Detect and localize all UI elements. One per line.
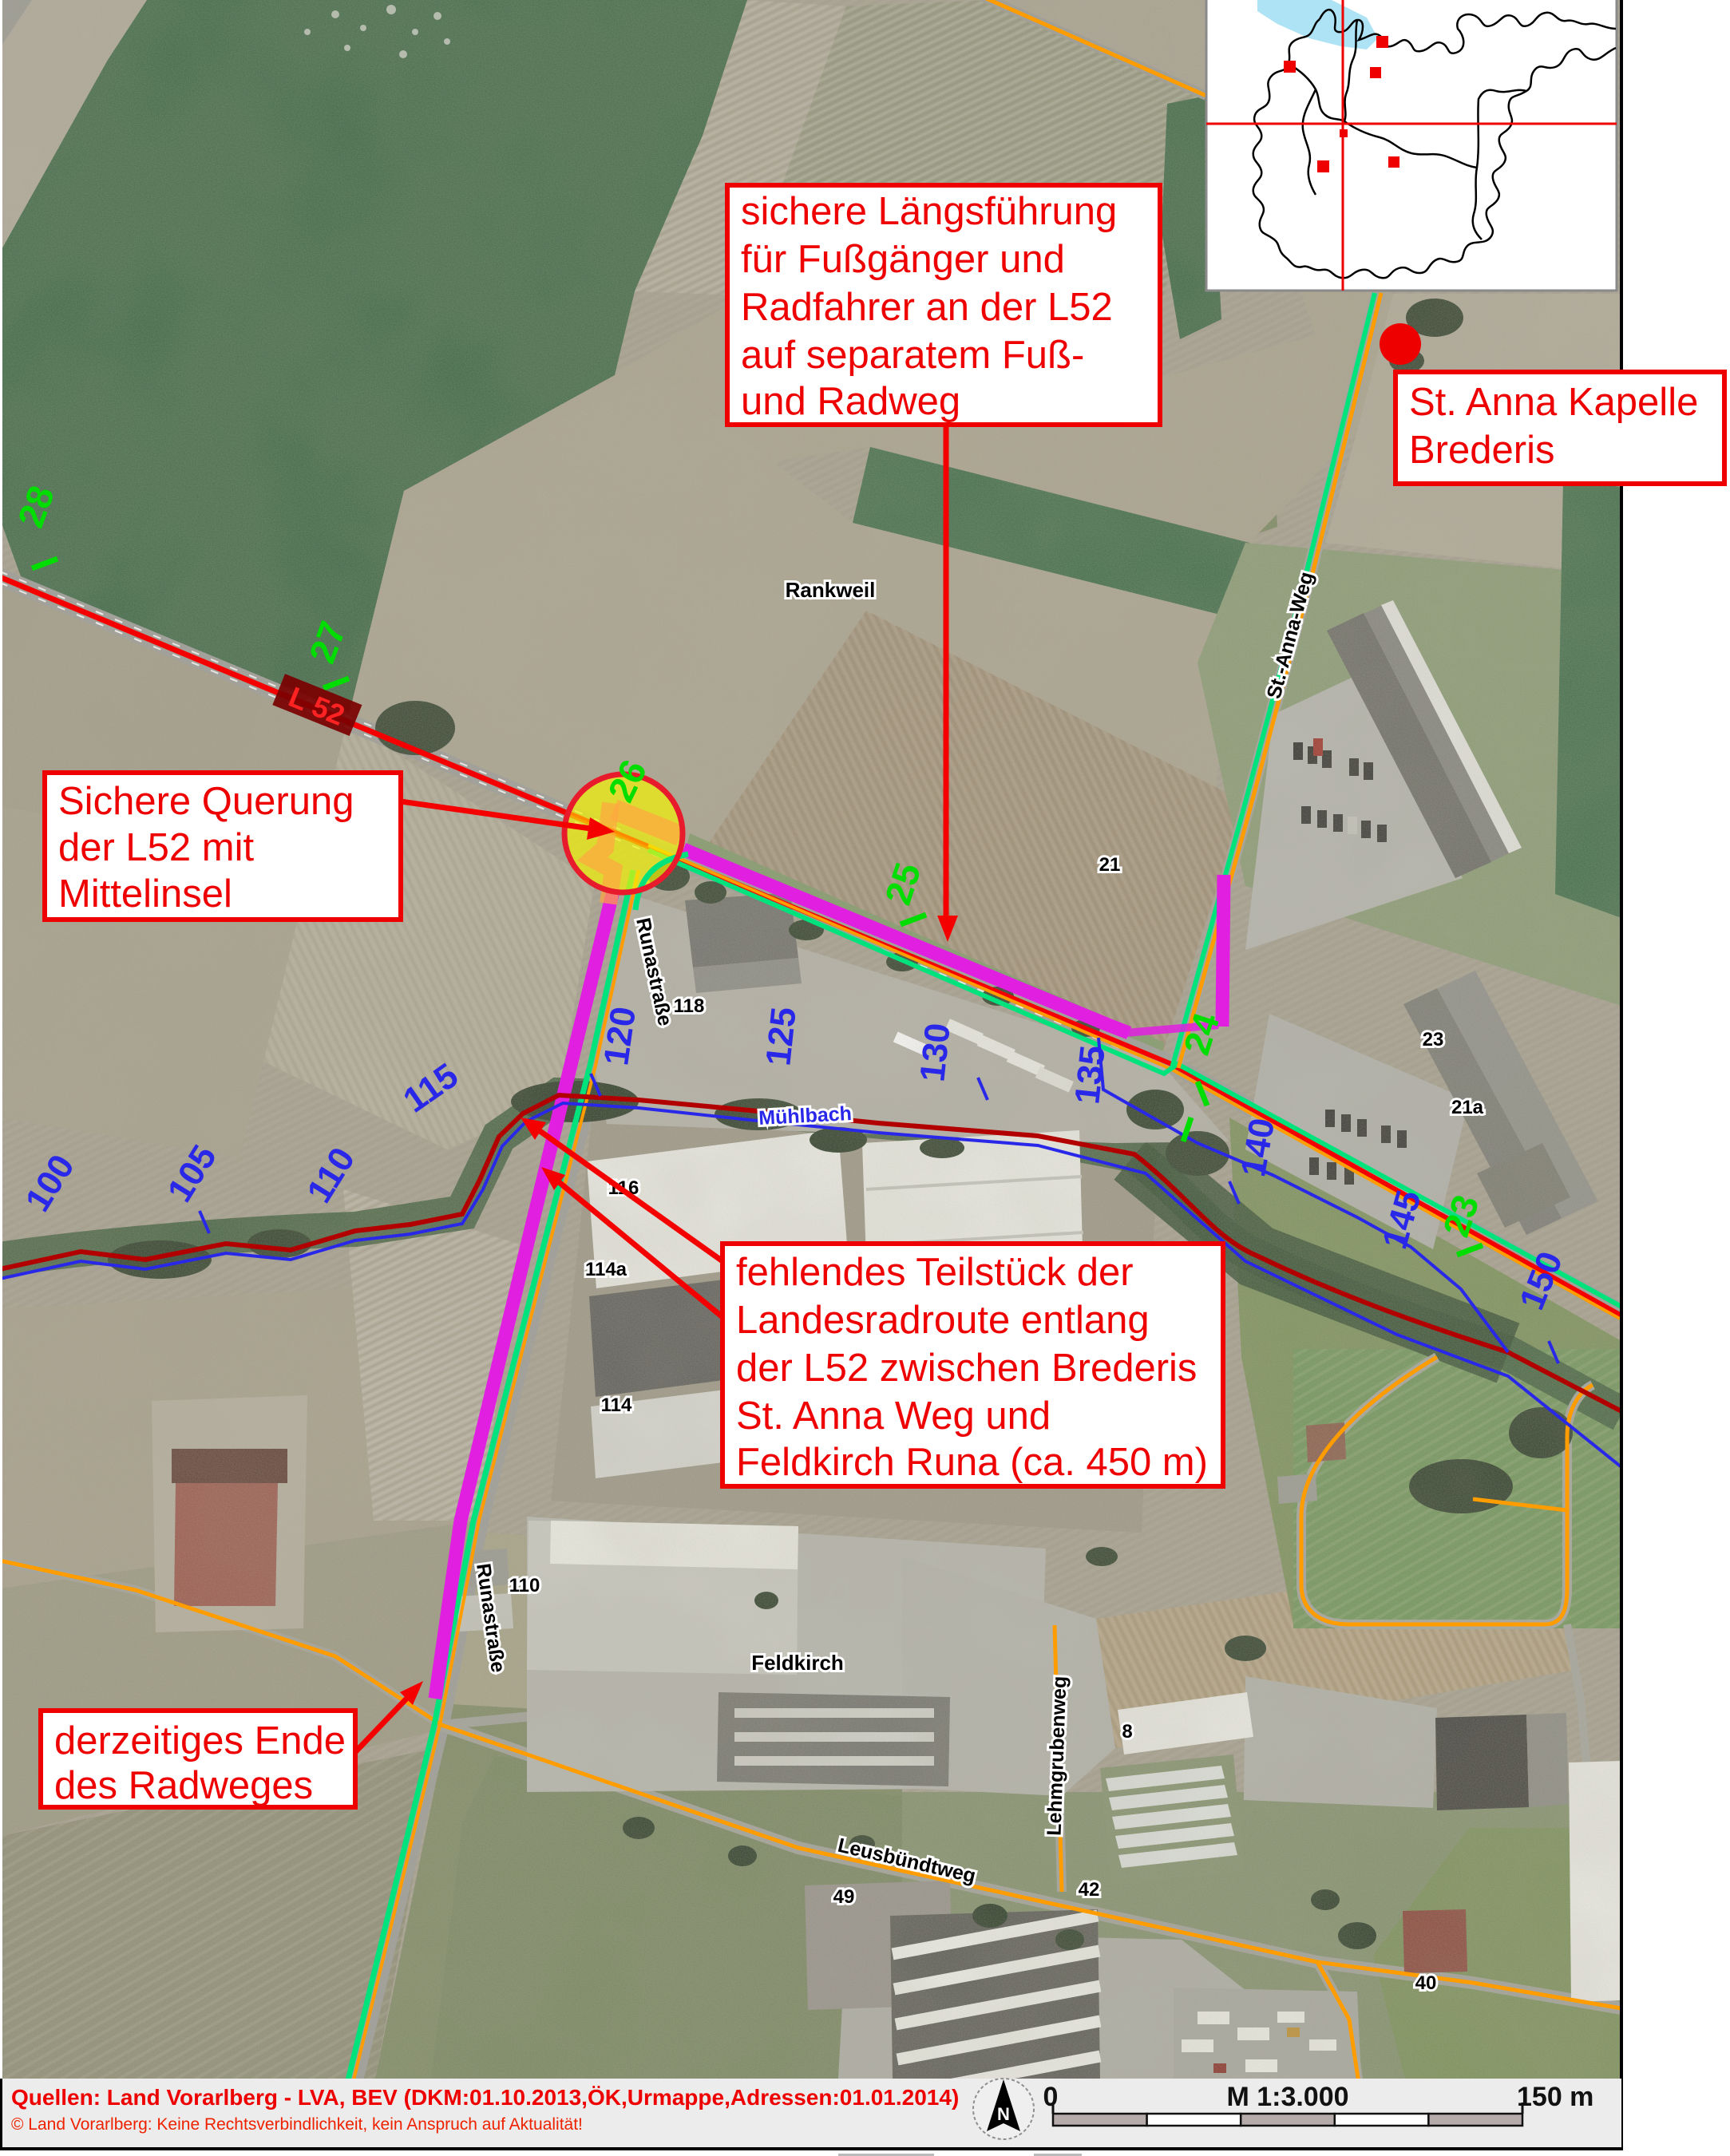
svg-text:Feldkirch: Feldkirch: [751, 1651, 844, 1675]
svg-text:114a: 114a: [585, 1259, 627, 1280]
svg-text:40: 40: [1415, 1972, 1437, 1994]
svg-text:Radfahrer an der L52: Radfahrer an der L52: [741, 286, 1113, 329]
svg-text:St. Anna Kapelle: St. Anna Kapelle: [1409, 381, 1698, 424]
svg-text:Quellen: Land Vorarlberg - LVA: Quellen: Land Vorarlberg - LVA, BEV (DKM…: [11, 2085, 959, 2110]
svg-text:42: 42: [1079, 1879, 1100, 1901]
svg-text:130: 130: [913, 1021, 957, 1083]
svg-text:N: N: [997, 2104, 1010, 2124]
svg-text:M 1:3.000: M 1:3.000: [1226, 2082, 1348, 2112]
svg-text:Landesradroute entlang: Landesradroute entlang: [736, 1299, 1150, 1342]
svg-text:St. Anna Weg und: St. Anna Weg und: [736, 1394, 1051, 1438]
svg-text:des Radweges: des Radweges: [54, 1764, 313, 1807]
svg-text:49: 49: [833, 1886, 855, 1908]
svg-text:114: 114: [601, 1394, 632, 1416]
svg-text:0: 0: [1043, 2082, 1059, 2112]
svg-text:120: 120: [596, 1004, 643, 1068]
svg-text:Brederis: Brederis: [1409, 429, 1554, 472]
svg-text:8: 8: [1122, 1721, 1132, 1743]
svg-text:118: 118: [674, 995, 705, 1017]
svg-text:auf separatem Fuß-: auf separatem Fuß-: [741, 334, 1084, 377]
svg-text:für Fußgänger und: für Fußgänger und: [741, 238, 1065, 281]
svg-text:der L52 mit: der L52 mit: [58, 826, 255, 869]
svg-text:110: 110: [509, 1575, 540, 1596]
svg-text:© Land Vorarlberg: Keine Recht: © Land Vorarlberg: Keine Rechtsverbindli…: [11, 2115, 583, 2134]
svg-text:Rankweil: Rankweil: [786, 578, 876, 602]
svg-text:23: 23: [1423, 1029, 1444, 1050]
svg-text:fehlendes Teilstück der: fehlendes Teilstück der: [736, 1251, 1134, 1294]
svg-text:21a: 21a: [1451, 1097, 1484, 1118]
svg-text:Mittelinsel: Mittelinsel: [58, 872, 232, 916]
svg-text:125: 125: [758, 1005, 803, 1067]
svg-text:Feldkirch Runa (ca. 450 m): Feldkirch Runa (ca. 450 m): [736, 1441, 1208, 1484]
svg-text:135: 135: [1067, 1043, 1112, 1106]
svg-text:Sichere Querung: Sichere Querung: [58, 780, 354, 823]
svg-text:150 m: 150 m: [1517, 2082, 1593, 2112]
svg-text:derzeitiges Ende: derzeitiges Ende: [54, 1719, 346, 1762]
svg-text:sichere Längsführung: sichere Längsführung: [741, 190, 1117, 233]
svg-text:21: 21: [1099, 854, 1121, 876]
svg-text:und Radweg: und Radweg: [741, 380, 960, 423]
svg-text:der L52 zwischen Brederis: der L52 zwischen Brederis: [736, 1347, 1197, 1390]
